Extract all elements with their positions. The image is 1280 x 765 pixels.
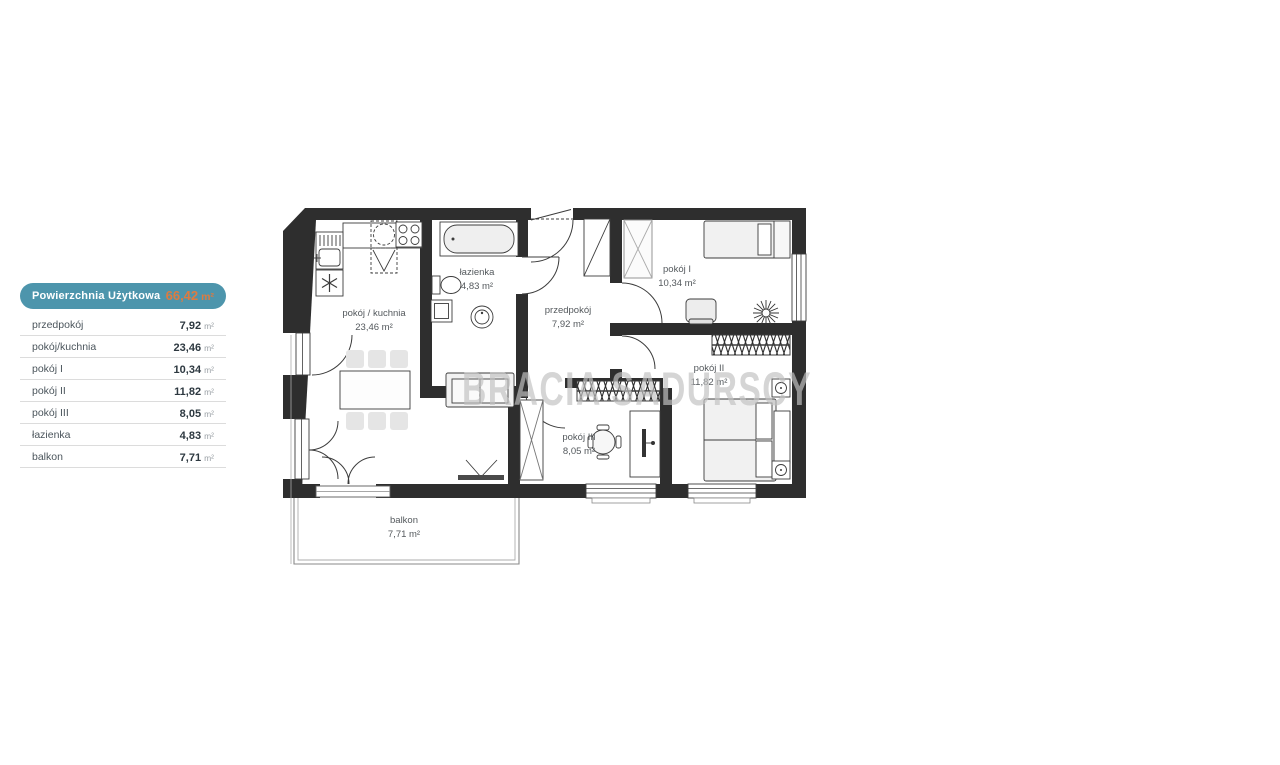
- room-name-label: pokój III: [32, 407, 69, 419]
- legend-row: przedpokój 7,92m²: [20, 314, 226, 336]
- room-name-label: łazienka: [32, 429, 71, 441]
- wall-room1-room2: [610, 323, 792, 335]
- wall-left-mid: [283, 375, 308, 419]
- window-room1: [792, 254, 806, 321]
- desk-icon: [630, 411, 660, 477]
- room-label-room3: pokój III: [562, 432, 595, 443]
- window-room3: [586, 484, 656, 503]
- legend-title: Powierzchnia Użytkowa: [32, 290, 160, 302]
- legend-row: pokój II 11,82m²: [20, 380, 226, 402]
- room-area-value: 23,46: [174, 342, 202, 354]
- stove-icon: [396, 222, 422, 247]
- room1-wardrobe-icon: [624, 220, 652, 278]
- room-area-value: 7,71: [180, 452, 201, 464]
- legend-row: łazienka 4,83m²: [20, 424, 226, 446]
- room-area-value: 7,92: [180, 320, 201, 332]
- room-label-bathroom: łazienka: [460, 267, 496, 278]
- washing-machine-icon: [431, 300, 452, 322]
- room-area-kitchen: 23,46 m²: [355, 322, 393, 333]
- legend-header: Powierzchnia Użytkowa 66,42m²: [20, 283, 226, 309]
- legend-total: 66,42m²: [166, 287, 214, 305]
- nightstand-icon: [772, 461, 790, 479]
- room-name-label: pokój/kuchnia: [32, 341, 96, 353]
- room-area-value: 4,83: [180, 430, 201, 442]
- room-area-value: 10,34: [174, 364, 202, 376]
- room-area-unit: m²: [204, 409, 214, 419]
- legend-rows: przedpokój 7,92m² pokój/kuchnia 23,46m² …: [20, 314, 226, 468]
- room-name-label: pokój I: [32, 363, 63, 375]
- legend-total-unit: m²: [201, 291, 214, 303]
- room-name-label: przedpokój: [32, 319, 83, 331]
- floorplan: pokój / kuchnia 23,46 m² łazienka 4,83 m…: [283, 198, 813, 578]
- legend-row: pokój/kuchnia 23,46m²: [20, 336, 226, 358]
- room2-wardrobe-icon: [712, 335, 790, 355]
- floorplan-drawing: pokój / kuchnia 23,46 m² łazienka 4,83 m…: [283, 198, 813, 578]
- fridge-icon: [316, 270, 343, 296]
- plant-icon: [753, 300, 779, 326]
- legend-total-value: 66,42: [166, 288, 199, 303]
- room-label-hall: przedpokój: [545, 305, 591, 316]
- room1-bed-icon: [704, 221, 790, 258]
- wall-hall-right-a: [610, 220, 622, 283]
- legend-row: balkon 7,71m²: [20, 446, 226, 468]
- kitchen-sink-icon: [313, 232, 343, 269]
- room-area-unit: m²: [204, 387, 214, 397]
- wall-right: [792, 208, 806, 498]
- room-area-value: 11,82: [174, 386, 201, 398]
- window-room2: [688, 484, 756, 503]
- area-legend-panel: Powierzchnia Użytkowa 66,42m² przedpokój…: [20, 283, 226, 468]
- room-area-unit: m²: [204, 431, 214, 441]
- room-area-bathroom: 4,83 m²: [461, 281, 493, 292]
- washbasin-icon: [471, 306, 493, 328]
- room-area-unit: m²: [204, 321, 214, 331]
- room-area-unit: m²: [204, 453, 214, 463]
- dining-table-icon: [340, 371, 410, 409]
- room-area-room1: 10,34 m²: [658, 278, 696, 289]
- room-area-hall: 7,92 m²: [552, 319, 584, 330]
- room-area-unit: m²: [204, 343, 214, 353]
- bathtub-icon: [440, 222, 518, 256]
- room-area-unit: m²: [204, 365, 214, 375]
- hall-wardrobe-icon: [584, 219, 610, 276]
- room-label-balcony: balkon: [390, 515, 418, 526]
- room-name-label: balkon: [32, 451, 63, 463]
- room-area-value: 8,05: [180, 408, 201, 420]
- legend-row: pokój I 10,34m²: [20, 358, 226, 380]
- room-area-room3: 8,05 m²: [563, 446, 595, 457]
- legend-row: pokój III 8,05m²: [20, 402, 226, 424]
- room-area-balcony: 7,71 m²: [388, 529, 420, 540]
- agency-watermark: BRACIA SADURSCY: [462, 362, 812, 415]
- wall-left-lower: [283, 479, 303, 487]
- room-name-label: pokój II: [32, 385, 66, 397]
- room-label-room1: pokój I: [663, 264, 691, 275]
- room1-chair-icon: [686, 299, 716, 324]
- room-label-kitchen: pokój / kuchnia: [342, 308, 406, 319]
- toilet-icon: [432, 276, 461, 294]
